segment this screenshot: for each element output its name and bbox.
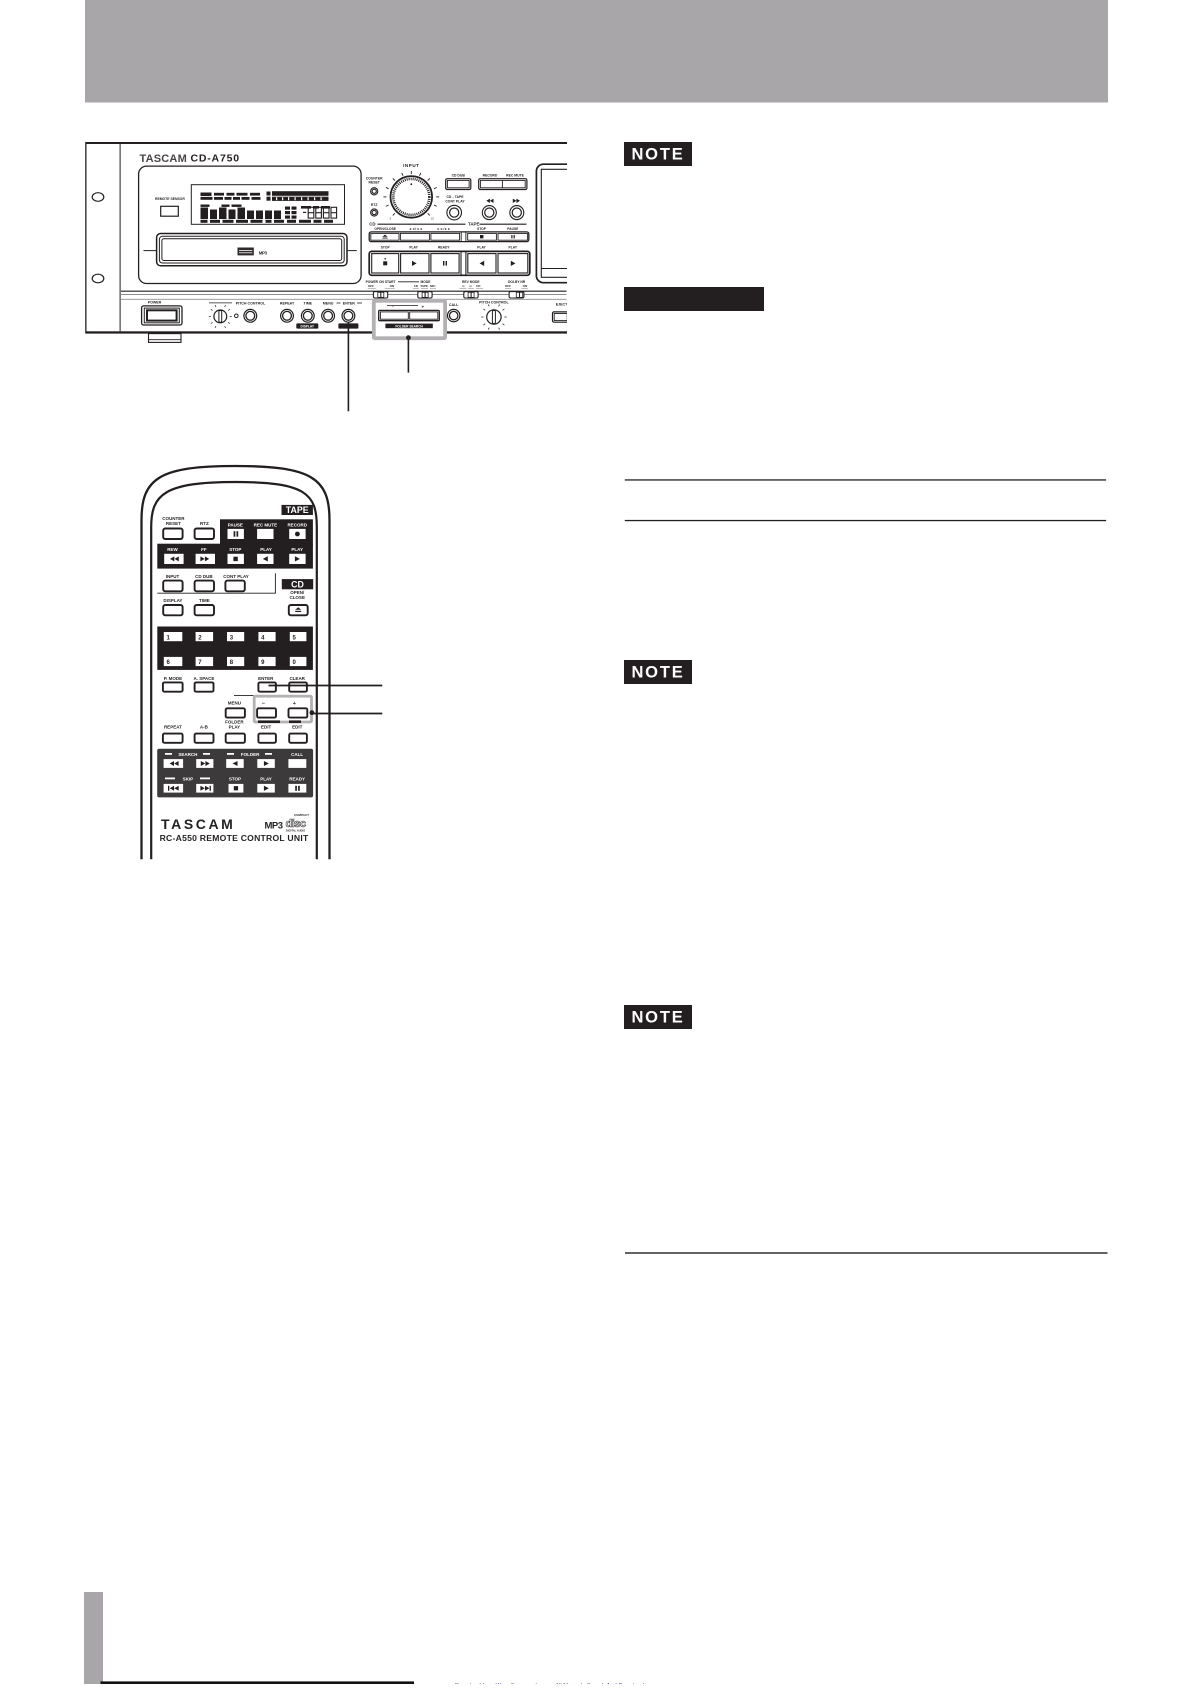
svg-text:CONT PLAY: CONT PLAY — [445, 200, 465, 204]
svg-text:TASCAM: TASCAM — [161, 816, 235, 832]
svg-text:PLAY: PLAY — [260, 777, 272, 782]
svg-text:TAPE: TAPE — [286, 505, 309, 515]
svg-text:+: + — [422, 304, 425, 309]
svg-text:A-B: A-B — [200, 725, 209, 730]
svg-text:REMOTE SENSOR: REMOTE SENSOR — [155, 197, 185, 201]
svg-text:INPUT: INPUT — [403, 163, 419, 168]
svg-text:►►/►►: ►►/►► — [437, 227, 451, 231]
svg-text:P. MODE: P. MODE — [164, 676, 182, 681]
svg-text:PAUSE: PAUSE — [507, 227, 519, 231]
svg-text:SEARCH: SEARCH — [178, 752, 197, 757]
svg-text:MIC: MIC — [430, 284, 436, 288]
svg-text:CLEAR: CLEAR — [289, 676, 305, 681]
svg-text:CD: CD — [369, 221, 375, 226]
svg-text:RTZ: RTZ — [200, 521, 209, 526]
svg-text:TAPE: TAPE — [468, 221, 479, 226]
svg-text:READY: READY — [438, 245, 450, 249]
svg-text:MP3: MP3 — [265, 820, 283, 831]
svg-text:EDIT: EDIT — [261, 725, 272, 730]
svg-text:PLAY: PLAY — [229, 725, 241, 730]
svg-text:CD: CD — [414, 284, 419, 288]
svg-text:PLAY: PLAY — [477, 245, 486, 249]
svg-text:DISPLAY: DISPLAY — [163, 598, 182, 603]
svg-text:CLOSE: CLOSE — [289, 595, 305, 600]
svg-text:TAPE: TAPE — [420, 284, 428, 288]
svg-text:REPEAT: REPEAT — [280, 301, 295, 305]
svg-text:FOLDER: FOLDER — [241, 752, 260, 757]
svg-text:PLAY: PLAY — [260, 547, 272, 552]
svg-text:RESET: RESET — [369, 181, 381, 185]
svg-text:PITCH CONTROL: PITCH CONTROL — [479, 301, 509, 305]
svg-text:TASCAM: TASCAM — [140, 153, 187, 165]
svg-text:PLAY: PLAY — [509, 245, 518, 249]
svg-text:STOP: STOP — [477, 227, 487, 231]
svg-text:STOP: STOP — [381, 245, 391, 249]
svg-text:NOTE: NOTE — [631, 1009, 684, 1027]
svg-text:READY: READY — [289, 777, 305, 782]
svg-text:MENU: MENU — [323, 301, 334, 305]
svg-text:disc: disc — [286, 818, 306, 830]
svg-text:+: + — [293, 701, 296, 707]
svg-text:POWER: POWER — [148, 300, 162, 304]
svg-text:CD DUB: CD DUB — [452, 173, 466, 177]
svg-text:INPUT: INPUT — [166, 574, 180, 579]
svg-text:10: 10 — [431, 217, 434, 221]
svg-text:RTZ: RTZ — [371, 203, 378, 207]
svg-text:CD: CD — [476, 284, 481, 288]
svg-text:CD→TAPE: CD→TAPE — [446, 195, 464, 199]
svg-text:EJECT: EJECT — [556, 303, 568, 307]
svg-text:RECORD: RECORD — [287, 522, 307, 527]
svg-text:PITCH CONTROL: PITCH CONTROL — [236, 301, 266, 305]
svg-text:CONT PLAY: CONT PLAY — [223, 574, 249, 579]
svg-text:REW: REW — [167, 547, 178, 552]
svg-text:ON: ON — [390, 284, 395, 288]
svg-text:EDIT: EDIT — [292, 725, 303, 730]
svg-text:CD-A750: CD-A750 — [191, 153, 240, 165]
svg-text:NOTE: NOTE — [631, 146, 684, 164]
svg-text:A. SPACE: A. SPACE — [193, 676, 214, 681]
svg-text:OFF: OFF — [368, 284, 374, 288]
svg-text:STOP: STOP — [229, 777, 241, 782]
svg-text:ENTER: ENTER — [343, 301, 356, 305]
svg-text:FOLDER SEARCH: FOLDER SEARCH — [395, 324, 423, 328]
svg-text:CD DUB: CD DUB — [195, 574, 213, 579]
svg-text:PLAY: PLAY — [291, 547, 303, 552]
svg-text:RESET: RESET — [166, 521, 181, 526]
svg-text:PLAY: PLAY — [409, 245, 418, 249]
svg-text:−: − — [262, 701, 265, 707]
svg-text:RECORD: RECORD — [483, 173, 498, 177]
svg-text:ENTER: ENTER — [258, 676, 274, 681]
svg-text:⎓: ⎓ — [469, 284, 472, 288]
svg-text:⎓: ⎓ — [462, 284, 465, 288]
svg-text:REC MUTE: REC MUTE — [506, 173, 524, 177]
svg-text:DISPLAY: DISPLAY — [301, 324, 315, 328]
svg-text:MP3: MP3 — [259, 251, 268, 256]
svg-text:STOP: STOP — [229, 547, 241, 552]
svg-text:0: 0 — [390, 217, 392, 221]
svg-text:NOTE: NOTE — [631, 664, 684, 682]
svg-text:REPEAT: REPEAT — [164, 725, 182, 730]
svg-text:TIME: TIME — [304, 301, 313, 305]
svg-text:TIME: TIME — [199, 598, 210, 603]
svg-text:OPEN/CLOSE: OPEN/CLOSE — [374, 227, 396, 231]
svg-text:SKIP: SKIP — [183, 777, 194, 782]
svg-text:CALL: CALL — [449, 303, 459, 307]
svg-text:FF: FF — [201, 547, 207, 552]
svg-text:MENU: MENU — [228, 701, 241, 706]
svg-text:REC MUTE: REC MUTE — [254, 522, 278, 527]
svg-text:◄◄/◄◄: ◄◄/◄◄ — [409, 227, 423, 231]
svg-text:RC-A550 REMOTE CONTROL UNIT: RC-A550 REMOTE CONTROL UNIT — [160, 833, 309, 843]
svg-text:PAUSE: PAUSE — [228, 522, 243, 527]
svg-text:ON: ON — [523, 284, 528, 288]
svg-text:DIGITAL AUDIO: DIGITAL AUDIO — [286, 829, 305, 833]
svg-text:CD: CD — [291, 579, 304, 589]
svg-text:OFF: OFF — [505, 284, 511, 288]
svg-text:COMPACT: COMPACT — [294, 813, 309, 817]
svg-text:CALL: CALL — [291, 752, 303, 757]
